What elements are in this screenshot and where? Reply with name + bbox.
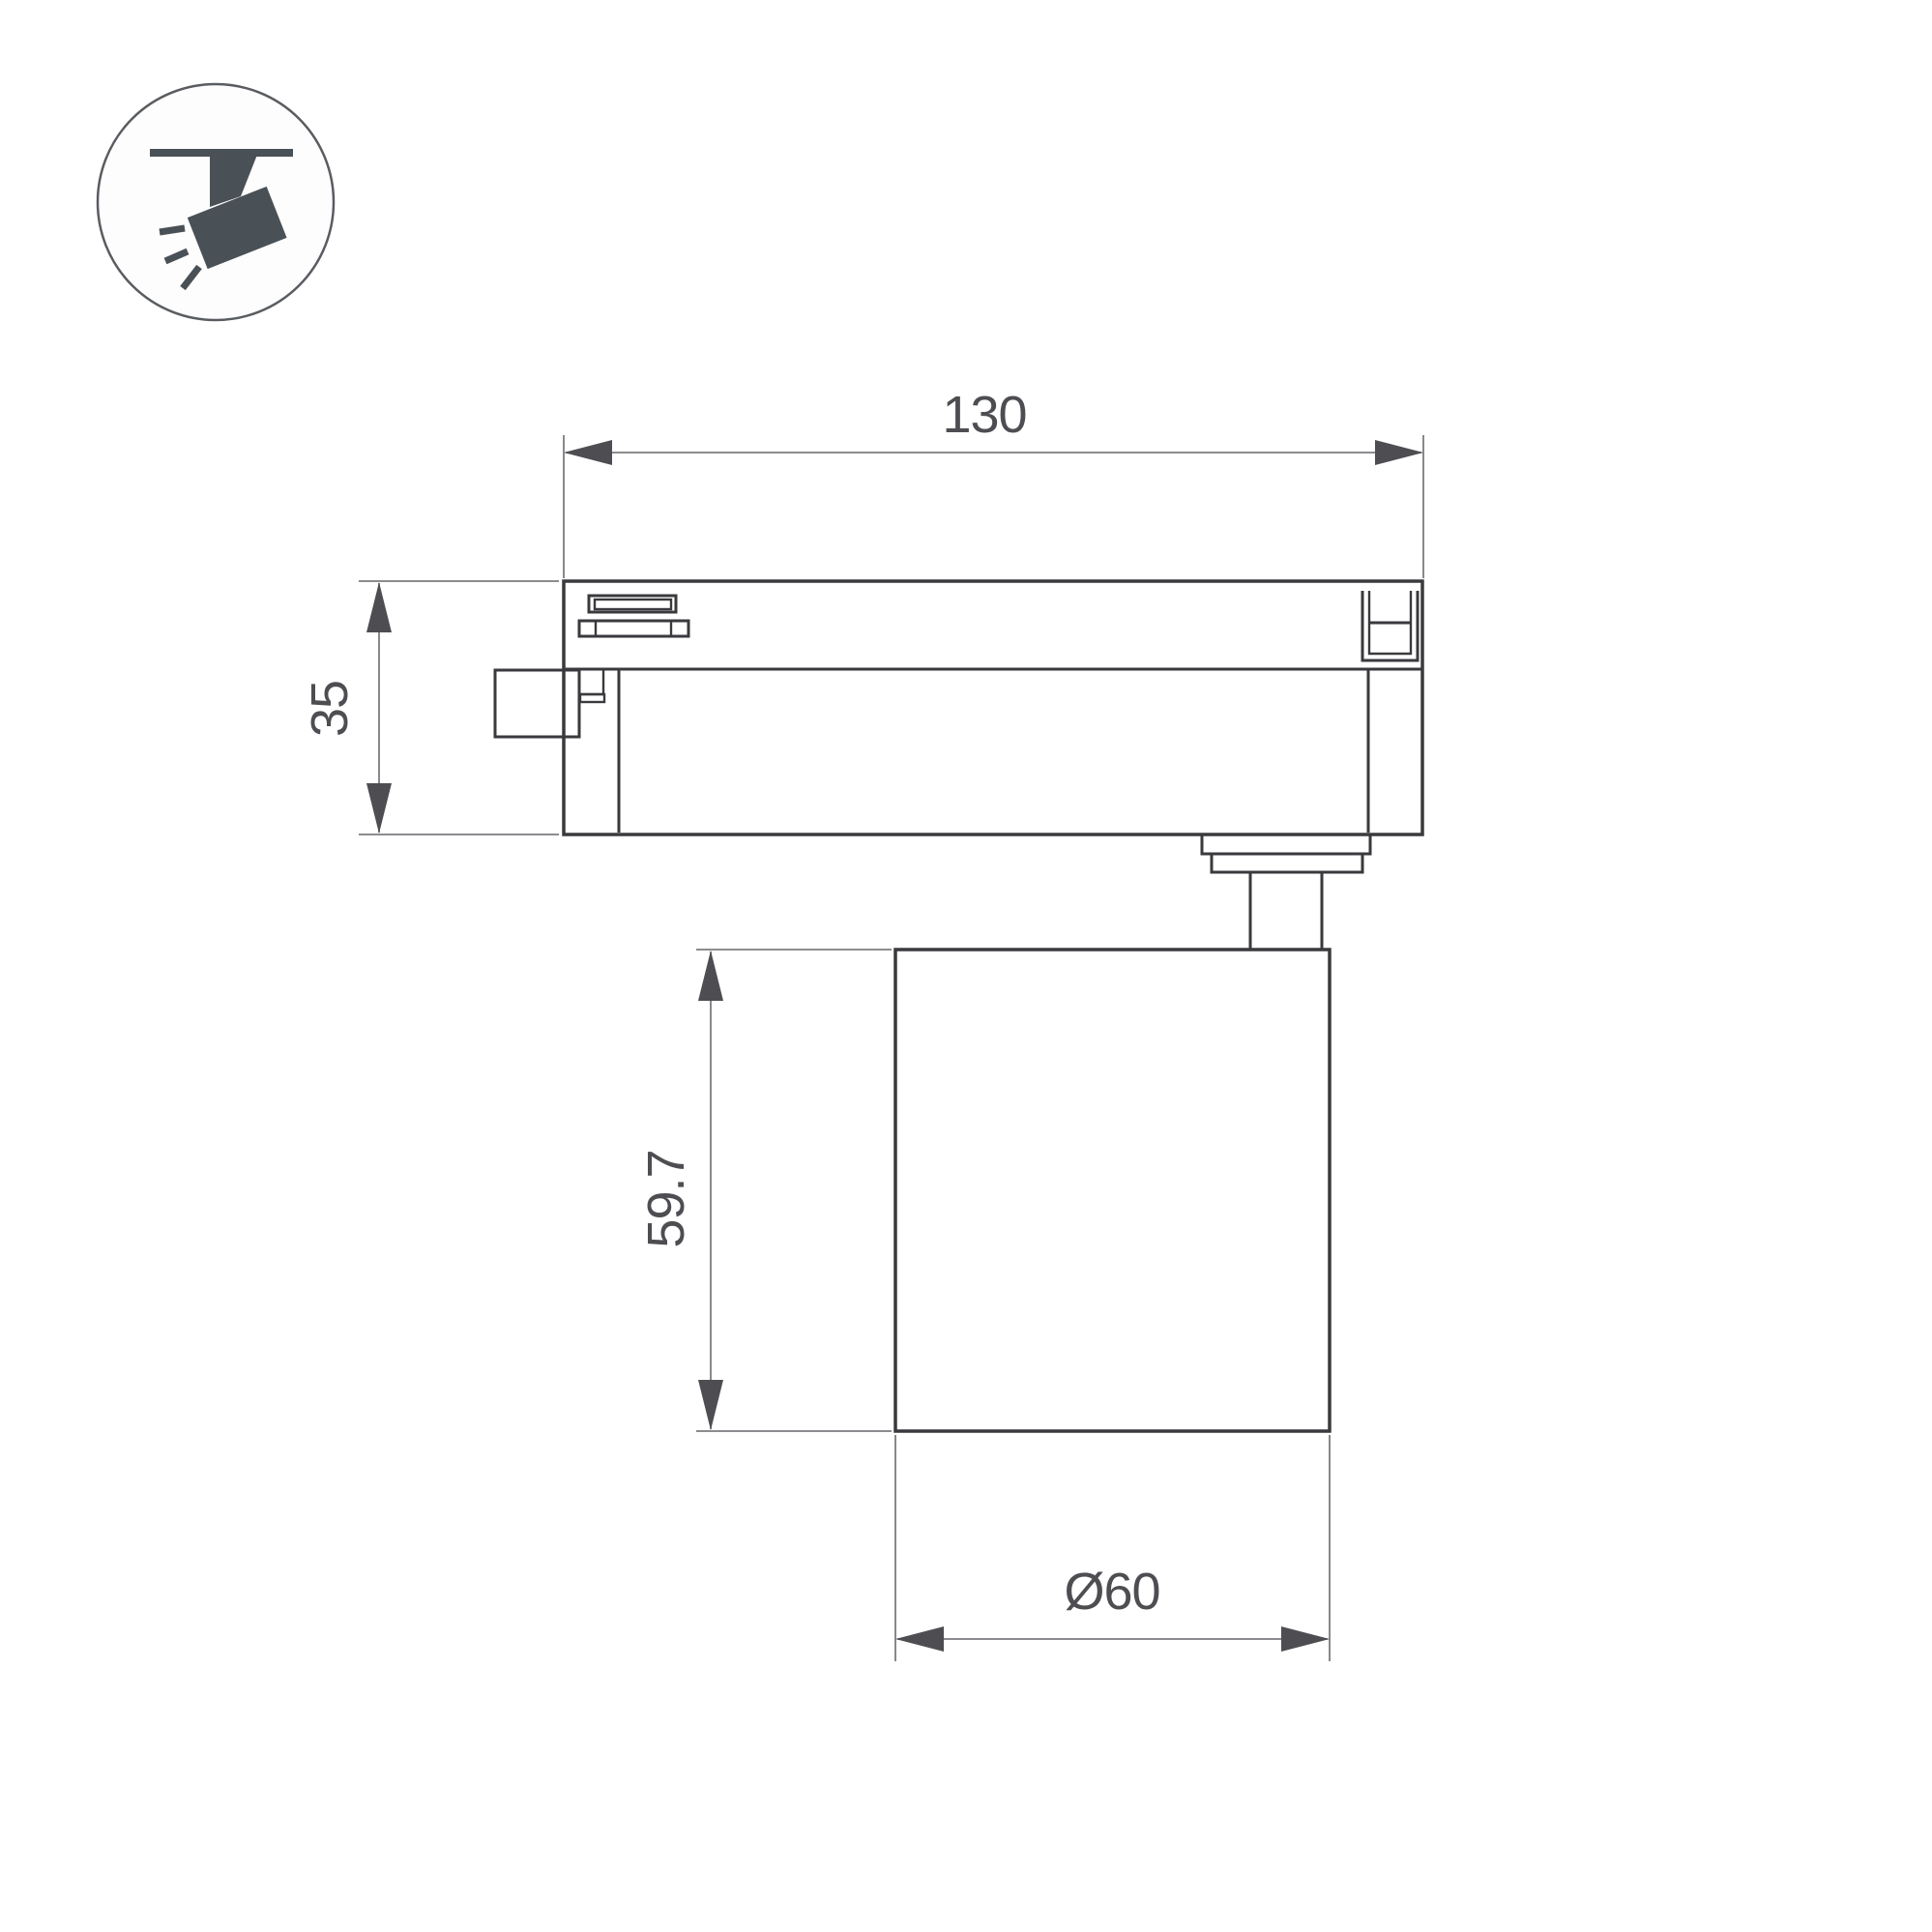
arrowhead-left [895, 1626, 944, 1652]
arrowhead-down [698, 1380, 723, 1430]
track-adapter [495, 581, 1422, 950]
arrowhead-right [1281, 1626, 1330, 1652]
track-light-dimension-drawing: 130 35 59.7 Ø60 [0, 0, 1932, 1932]
dimension-label-35: 35 [301, 681, 359, 737]
icon-light-ray [160, 228, 185, 232]
arrowhead-up [698, 951, 723, 1001]
lamp-body [895, 950, 1330, 1431]
neck-flange-lower [1212, 854, 1362, 872]
neck-flange-upper [1202, 834, 1370, 854]
dimension-adapter-height: 35 [301, 581, 559, 834]
arrowhead-right [1375, 440, 1423, 465]
adapter-outline [564, 581, 1422, 834]
arrowhead-up [366, 582, 392, 632]
dimension-label-59-7: 59.7 [637, 1150, 695, 1247]
arrowhead-down [366, 783, 392, 834]
dimension-label-diameter-60: Ø60 [1064, 1563, 1159, 1621]
neck-stem [1250, 872, 1322, 950]
dimension-body-height: 59.7 [637, 950, 892, 1431]
dimension-adapter-length: 130 [564, 386, 1423, 578]
neck-stem-overlay [1250, 872, 1322, 950]
dimension-body-diameter: Ø60 [895, 1435, 1330, 1661]
technical-drawing-page: 130 35 59.7 Ø60 [0, 0, 1932, 1932]
arrowhead-left [564, 440, 612, 465]
track-spotlight-icon [98, 84, 334, 320]
dimension-label-130: 130 [942, 386, 1026, 444]
